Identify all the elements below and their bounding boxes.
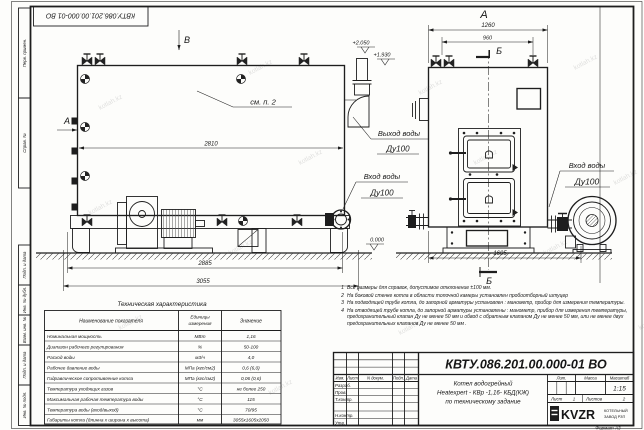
sheet-label: Лист bbox=[550, 397, 563, 402]
side-outlet-pipe bbox=[345, 59, 372, 128]
spec-row-name: Гидравлическое сопротивление котла bbox=[47, 376, 134, 381]
spec-row-value: 4,0 bbox=[248, 355, 255, 360]
product-name-line1: Котел водогрейный bbox=[454, 381, 513, 388]
note-item: 3 На подводящей трубе котла, до запорной… bbox=[338, 300, 630, 307]
notes-list: 1 Все размеры для справок, допустимое от… bbox=[338, 285, 630, 329]
logo-subtext-2: ЗАВОД РЗП bbox=[604, 415, 625, 419]
level-1930: +1.930 bbox=[374, 53, 392, 59]
note-item: 4 На отводящей трубе котла, до запорной … bbox=[338, 308, 630, 328]
note-number: 2 bbox=[338, 293, 347, 300]
side-dimensions: 2810 2885 3055 bbox=[64, 142, 359, 292]
note-text: Все размеры для справок, допустимое откл… bbox=[347, 285, 630, 292]
margin-strip: Перв. примен. Справ. № Подп. и дата Инв.… bbox=[19, 8, 31, 426]
massa-label: Масса bbox=[584, 376, 597, 381]
logo-text: KVZR bbox=[561, 408, 595, 422]
spec-header-name: Наименование показателя bbox=[79, 319, 143, 325]
spec-row-value: не более 250 bbox=[237, 386, 266, 391]
spec-row-name: Расход воды bbox=[47, 355, 75, 360]
spec-row-unit: МПа (кгс/см2) bbox=[185, 376, 216, 381]
side-annotations: см. п. 2 Выход воды Ду100 Вход воды Ду10… bbox=[57, 30, 428, 250]
spec-row-name: Максимальная рабочая температура воды bbox=[47, 397, 144, 402]
level-zero: 0.000 bbox=[370, 238, 385, 244]
inlet-label-side: Вход воды bbox=[364, 172, 401, 181]
ground-left bbox=[36, 253, 372, 260]
watermark-text: kotlah.kz bbox=[613, 169, 639, 187]
spec-row-value: 115 bbox=[247, 397, 255, 402]
outlet-dn-label: Ду100 bbox=[385, 145, 410, 154]
spec-row-unit: МВт bbox=[195, 334, 206, 339]
sheet-value: 1 bbox=[573, 397, 576, 402]
front-view: 1260 960 1605 А Б Б Вход воды Ду100 bbox=[396, 9, 616, 286]
watermark-text: kotlah.kz bbox=[418, 79, 444, 97]
side-blower-motor bbox=[116, 197, 213, 254]
spec-rows: Номинальная мощность МВт 1,16 Диапазон р… bbox=[46, 334, 269, 423]
margin-label-podp-data-2: Подп. и дата bbox=[22, 351, 27, 379]
spec-row-unit: °С bbox=[197, 397, 203, 402]
spec-row-value: 3055х1605х2050 bbox=[233, 417, 269, 422]
door-frame-bolts bbox=[463, 132, 516, 223]
dim-960: 960 bbox=[483, 36, 493, 42]
dim-3055: 3055 bbox=[196, 279, 210, 285]
spec-row-unit: м3/ч bbox=[195, 355, 205, 360]
spec-row-value: 0,6 (6,0) bbox=[242, 365, 260, 370]
watermark-text: kotlah.kz bbox=[638, 314, 644, 332]
col-doc: N докум. bbox=[367, 376, 384, 381]
top-stamp: КВТУ.086.201.00.000-01 ВО bbox=[34, 7, 149, 27]
margin-label-podp-data-1: Подп. и дата bbox=[22, 251, 27, 279]
note-number: 3 bbox=[338, 300, 347, 307]
sheets-value: 2 bbox=[622, 397, 626, 402]
row-utv: Утв. bbox=[335, 420, 345, 425]
spec-table: Техническая характеристика Наименование … bbox=[45, 301, 282, 424]
level-2050: +2.050 bbox=[353, 41, 371, 47]
note-number: 1 bbox=[338, 285, 347, 292]
spec-row-name: Номинальная мощность bbox=[47, 334, 102, 339]
spec-table-title: Техническая характеристика bbox=[117, 301, 207, 308]
col-list: Лист bbox=[346, 376, 358, 381]
product-name-line2: Heatexpert - КВр -1,16- КБД(КЖ) bbox=[437, 390, 529, 397]
watermark-text: kotlah.kz bbox=[248, 59, 274, 77]
row-prov: Пров. bbox=[335, 390, 347, 395]
lit-label: Лит. bbox=[556, 376, 567, 381]
spec-row-name: Температура уходящих газов bbox=[47, 386, 114, 391]
note-text: На подводящей трубе котла, до запорной а… bbox=[347, 300, 630, 307]
outlet-label: Выход воды bbox=[378, 129, 421, 138]
spec-row-value: 70/95 bbox=[245, 407, 257, 412]
note-text: На боковой стенке котла в области топочн… bbox=[347, 293, 630, 300]
top-stamp-doc-number: КВТУ.086.201.00.000-01 ВО bbox=[45, 12, 135, 19]
margin-label-perv-primen: Перв. примен. bbox=[22, 39, 27, 68]
col-podp: Подп. bbox=[393, 376, 404, 381]
spec-row-name: Рабочее давление воды bbox=[47, 365, 100, 370]
spec-row-unit: °С bbox=[197, 407, 203, 412]
furnace-door-lower bbox=[449, 179, 518, 218]
spec-row-value: 0,06 (0,6) bbox=[241, 376, 262, 381]
drawing-canvas: kotlah.kz kotlah.kz kotlah.kz kotlah.kz … bbox=[0, 0, 644, 430]
watermark-text: kotlah.kz bbox=[298, 149, 324, 167]
margin-label-sprav: Справ. № bbox=[22, 133, 27, 153]
view-arrow-a: А bbox=[63, 116, 70, 126]
spec-row-unit: °С bbox=[197, 386, 203, 391]
dim-1260: 1260 bbox=[481, 23, 495, 29]
margin-label-inv-podl: Инв. № подл. bbox=[22, 392, 27, 419]
view-arrow-b: В bbox=[184, 35, 190, 45]
spec-row-name: Габариты котла (длинна х ширина х высота… bbox=[47, 417, 150, 422]
title-doc-number: КВТУ.086.201.00.000-01 ВО bbox=[445, 358, 607, 372]
watermark-text: kotlah.kz bbox=[88, 199, 114, 217]
spec-row-value: 1,16 bbox=[246, 334, 256, 339]
margin-label-vzam-inv: Взам. инв. № bbox=[22, 316, 27, 343]
row-razrab: Разраб. bbox=[335, 383, 351, 388]
inlet-dn-label-front: Ду100 bbox=[574, 177, 600, 187]
see-note-label: см. п. 2 bbox=[250, 98, 276, 107]
scale-value: 1:15 bbox=[613, 386, 626, 393]
watermark-text: kotlah.kz bbox=[573, 54, 599, 72]
spec-row-unit: % bbox=[198, 344, 202, 349]
section-mark-top: Б bbox=[496, 46, 502, 56]
dim-2885: 2885 bbox=[197, 261, 212, 267]
margin-label-inv-dubl: Инв. № дубл. bbox=[22, 287, 27, 313]
blower-fan bbox=[566, 197, 617, 254]
format-label: Формат А3 bbox=[595, 426, 621, 430]
title-block: КВТУ.086.201.00.000-01 ВО Изм. Лист N до… bbox=[334, 353, 634, 430]
sheets-label: Листов bbox=[585, 397, 603, 402]
product-name-line3: по техническому задание bbox=[445, 399, 521, 406]
spec-header-unit-2: измерения bbox=[189, 321, 213, 326]
kvzr-logo: KVZR КОТЕЛЬНЫЙ ЗАВОД РЗП bbox=[550, 406, 628, 422]
spec-row-name: Диапазон рабочего регулирования bbox=[46, 344, 124, 349]
spec-row-name: Температура воды (вход/выход) bbox=[47, 407, 119, 412]
view-label-a: А bbox=[479, 9, 487, 21]
inlet-label-front: Вход воды bbox=[569, 161, 606, 170]
spec-header-unit-1: Единицы bbox=[190, 315, 210, 320]
watermark-text: kotlah.kz bbox=[98, 94, 124, 112]
spec-row-unit: мм bbox=[197, 417, 204, 422]
spec-row-unit: МПа (кгс/см2) bbox=[185, 365, 216, 370]
note-text: На отводящей трубе котла, до запорной ар… bbox=[347, 308, 630, 328]
front-left-stub bbox=[413, 99, 429, 121]
front-left-valve bbox=[406, 211, 428, 230]
side-inlet-flange bbox=[325, 210, 351, 229]
dim-2810: 2810 bbox=[203, 142, 218, 148]
note-number: 4 bbox=[338, 308, 347, 328]
spec-header-value: Значение bbox=[240, 319, 262, 325]
drawing-sheet: kotlah.kz kotlah.kz kotlah.kz kotlah.kz … bbox=[0, 0, 644, 430]
spec-row-value: 50-100 bbox=[244, 344, 259, 349]
masshtab-label: Масштаб bbox=[610, 376, 630, 381]
dim-1605: 1605 bbox=[493, 251, 507, 257]
row-nkontr: Н.контр. bbox=[335, 413, 354, 418]
col-izm: Изм. bbox=[336, 376, 345, 381]
logo-subtext-1: КОТЕЛЬНЫЙ bbox=[604, 409, 628, 413]
inlet-dn-label-side: Ду100 bbox=[369, 189, 394, 198]
col-data: Дата bbox=[405, 376, 418, 381]
note-item: 2 На боковой стенке котла в области топо… bbox=[338, 293, 630, 300]
row-tkontr: Т.контр. bbox=[335, 397, 353, 402]
note-item: 1 Все размеры для справок, допустимое от… bbox=[338, 285, 630, 292]
